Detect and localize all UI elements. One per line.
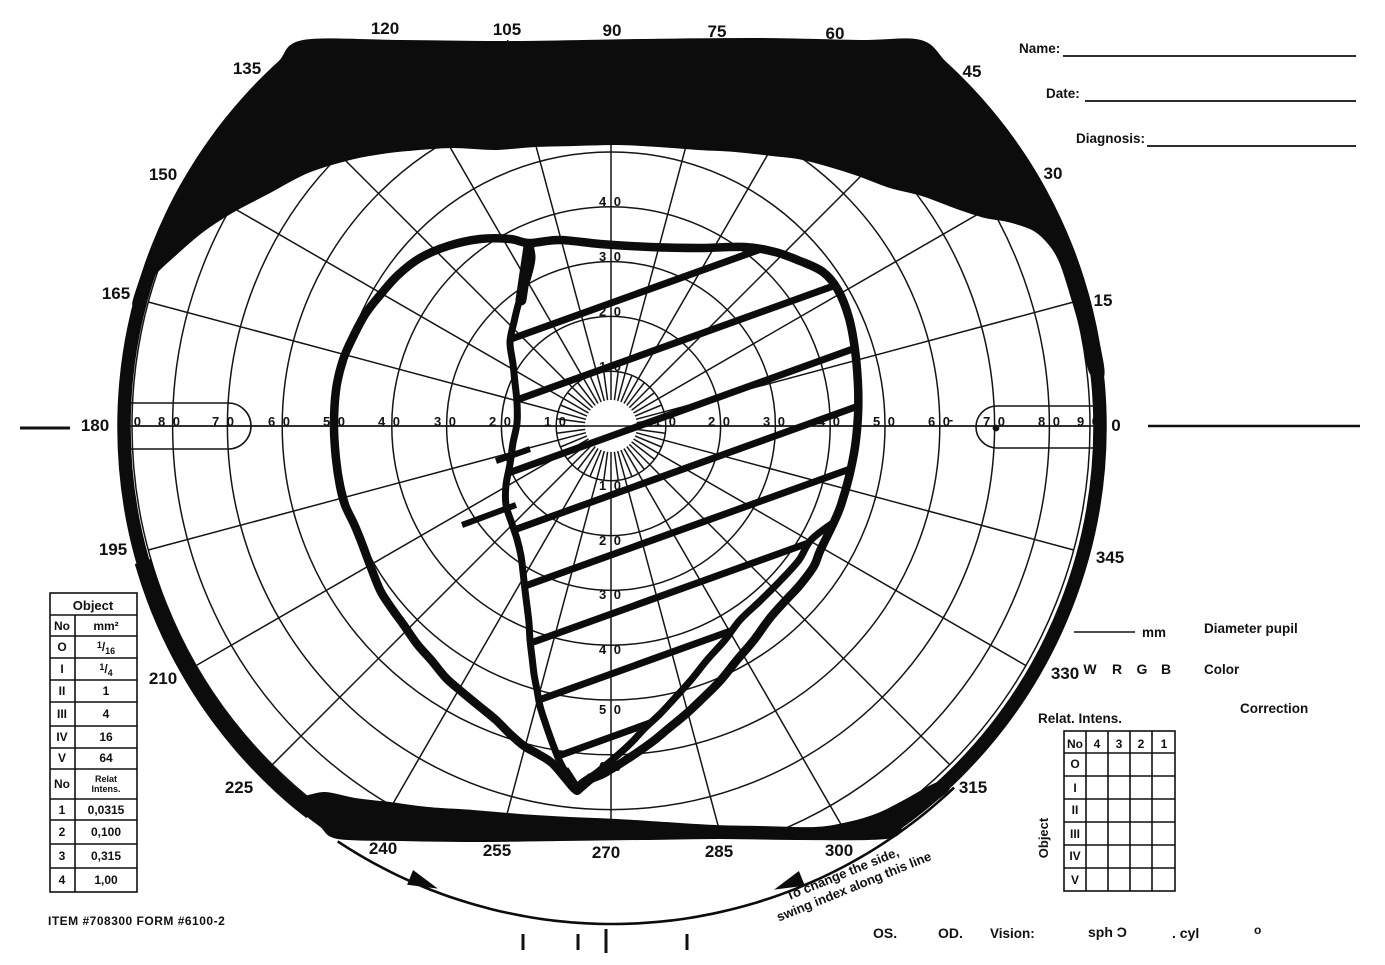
svg-text:Date:: Date: [1046,86,1080,101]
svg-text:o: o [1254,923,1261,937]
svg-text:Vision:: Vision: [990,926,1035,941]
svg-text:4: 4 [1094,737,1101,751]
svg-text:Relat. Intens.: Relat. Intens. [1038,711,1122,726]
svg-text:64: 64 [99,751,113,765]
svg-text:0,315: 0,315 [91,849,121,863]
svg-text:210: 210 [149,669,177,688]
svg-text:7 0: 7 0 [212,414,236,429]
svg-text:4 0: 4 0 [599,194,623,209]
svg-text:330: 330 [1051,664,1079,683]
svg-text:V: V [1071,873,1079,887]
svg-text:Name:: Name: [1019,41,1060,56]
svg-text:W: W [1083,661,1097,677]
svg-text:No: No [54,777,70,791]
svg-text:Correction: Correction [1240,701,1308,716]
svg-text:270: 270 [592,843,620,862]
svg-text:Object: Object [73,598,114,613]
svg-text:2: 2 [59,825,66,839]
svg-text:ITEM #708300 FORM #6100-2: ITEM #708300 FORM #6100-2 [48,914,225,928]
svg-text:Object: Object [1036,817,1051,858]
svg-text:3: 3 [59,849,66,863]
svg-text:III: III [57,707,67,721]
svg-text:300: 300 [825,841,853,860]
svg-text:No: No [54,619,70,633]
svg-text:R: R [1112,661,1122,677]
svg-text:B: B [1161,661,1171,677]
svg-text:mm²: mm² [93,619,118,633]
svg-text:3: 3 [1116,737,1123,751]
svg-text:No: No [1067,737,1083,751]
svg-text:IV: IV [1069,849,1080,863]
svg-text:Diameter pupil: Diameter pupil [1204,621,1298,636]
svg-text:III: III [1070,827,1080,841]
svg-text:0,100: 0,100 [91,825,121,839]
svg-text:3 0: 3 0 [434,414,458,429]
svg-text:4 0: 4 0 [378,414,402,429]
svg-text:1: 1 [1161,737,1168,751]
svg-text:16: 16 [99,730,113,744]
svg-text:150: 150 [149,165,177,184]
svg-text:2 0: 2 0 [599,533,623,548]
svg-text:sph Ɔ: sph Ɔ [1088,924,1127,940]
svg-text:OD.: OD. [938,925,963,941]
svg-text:8 0: 8 0 [158,414,182,429]
svg-text:3 0: 3 0 [763,414,787,429]
svg-text:195: 195 [99,540,127,559]
svg-text:1 0: 1 0 [544,414,568,429]
svg-text:2 0: 2 0 [489,414,513,429]
svg-text:1: 1 [59,803,66,817]
svg-text:90: 90 [603,21,622,40]
svg-text:Intens.: Intens. [91,784,120,794]
svg-text:225: 225 [225,778,253,797]
svg-text:V: V [58,751,66,765]
svg-text:I: I [60,662,63,676]
svg-text:1/4: 1/4 [99,662,112,678]
svg-text:6 0: 6 0 [268,414,292,429]
svg-text:105: 105 [493,20,521,39]
svg-text:5 0: 5 0 [599,702,623,717]
svg-text:0: 0 [1111,416,1120,435]
svg-text:O: O [57,640,66,654]
svg-text:0,0315: 0,0315 [88,803,125,817]
svg-text:8 0: 8 0 [1038,414,1062,429]
svg-text:Diagnosis:: Diagnosis: [1076,131,1145,146]
svg-text:120: 120 [371,19,399,38]
svg-text:mm: mm [1142,625,1166,640]
svg-text:1/16: 1/16 [97,640,115,656]
svg-text:255: 255 [483,841,511,860]
svg-text:II: II [1072,803,1079,817]
svg-text:345: 345 [1096,548,1124,567]
svg-text:30: 30 [1044,164,1063,183]
svg-text:. cyl: . cyl [1172,925,1199,941]
svg-text:3 0: 3 0 [599,587,623,602]
svg-text:5 0: 5 0 [873,414,897,429]
svg-text:4 0: 4 0 [599,642,623,657]
svg-text:7 0: 7 0 [983,414,1007,429]
svg-text:Relat: Relat [95,774,117,784]
svg-text:3 0: 3 0 [599,249,623,264]
svg-text:I: I [1073,781,1076,795]
svg-text:2: 2 [1138,737,1145,751]
svg-text:2 0: 2 0 [708,414,732,429]
svg-text:IV: IV [56,730,67,744]
svg-text:OS.: OS. [873,925,897,941]
svg-text:Color: Color [1204,662,1240,677]
svg-text:O: O [1070,757,1079,771]
svg-text:180: 180 [81,416,109,435]
svg-text:45: 45 [963,62,982,81]
svg-text:285: 285 [705,842,733,861]
svg-text:4: 4 [59,873,66,887]
svg-text:1,00: 1,00 [94,873,118,887]
svg-text:15: 15 [1094,291,1113,310]
svg-text:135: 135 [233,59,261,78]
svg-text:240: 240 [369,839,397,858]
svg-text:4: 4 [103,707,110,721]
svg-text:165: 165 [102,284,130,303]
svg-text:G: G [1137,661,1148,677]
svg-text:-: - [949,412,955,427]
svg-text:1: 1 [103,684,110,698]
svg-text:II: II [59,684,66,698]
svg-text:315: 315 [959,778,987,797]
